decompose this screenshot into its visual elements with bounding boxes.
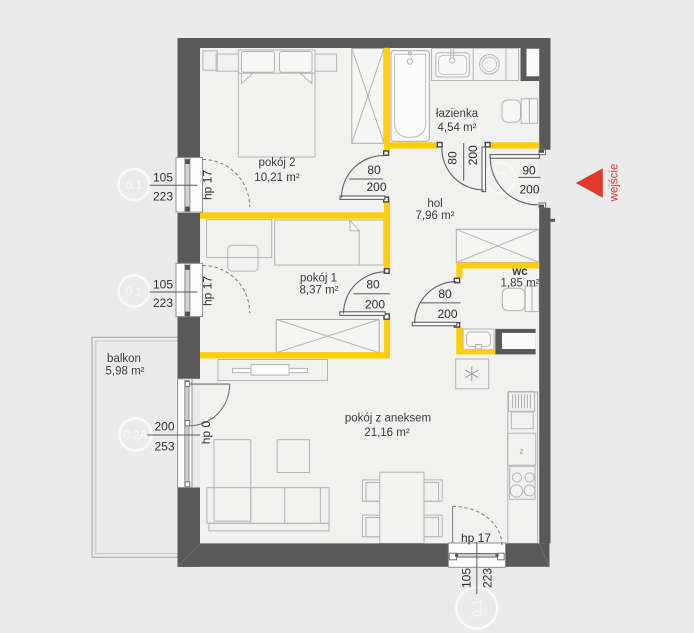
svg-text:hp 0: hp 0: [199, 420, 213, 444]
svg-text:balkon: balkon: [107, 353, 141, 365]
svg-text:253: 253: [154, 439, 174, 453]
svg-text:wc: wc: [511, 266, 528, 278]
svg-text:8,37 m²: 8,37 m²: [300, 285, 339, 297]
svg-text:hp 17: hp 17: [201, 170, 215, 200]
svg-text:90: 90: [522, 164, 536, 178]
svg-text:223: 223: [153, 296, 173, 310]
svg-text:80: 80: [367, 163, 381, 177]
svg-text:4,54 m²: 4,54 m²: [438, 122, 477, 134]
svg-text:1,85 m²: 1,85 m²: [501, 278, 540, 290]
svg-text:0.2A: 0.2A: [124, 430, 148, 442]
svg-text:200: 200: [437, 307, 457, 321]
svg-text:80: 80: [445, 151, 459, 165]
svg-text:0.1: 0.1: [469, 599, 484, 617]
svg-text:hp 17: hp 17: [461, 531, 491, 545]
svg-text:hol: hol: [427, 198, 442, 210]
svg-text:0.1: 0.1: [126, 178, 143, 192]
svg-text:200: 200: [466, 145, 480, 165]
svg-text:pokój 1: pokój 1: [300, 273, 337, 285]
svg-text:łazienka: łazienka: [436, 108, 479, 120]
svg-text:pokój z aneksem: pokój z aneksem: [345, 413, 431, 425]
svg-text:wejście: wejście: [609, 164, 621, 203]
svg-text:80: 80: [366, 278, 380, 292]
svg-text:21,16 m²: 21,16 m²: [364, 427, 410, 439]
svg-text:200: 200: [154, 420, 174, 434]
svg-text:105: 105: [153, 277, 173, 291]
svg-text:80: 80: [438, 287, 452, 301]
svg-text:7,96 m²: 7,96 m²: [416, 210, 455, 222]
svg-text:105: 105: [153, 171, 173, 185]
svg-text:105: 105: [460, 568, 474, 588]
svg-text:200: 200: [365, 298, 385, 312]
svg-text:hp 17: hp 17: [201, 276, 215, 306]
svg-text:200: 200: [366, 180, 386, 194]
svg-text:z: z: [520, 447, 524, 456]
svg-text:5,98 m²: 5,98 m²: [106, 366, 145, 378]
svg-text:0.1: 0.1: [126, 285, 143, 299]
svg-text:223: 223: [153, 190, 173, 204]
svg-text:0.1: 0.1: [494, 169, 508, 186]
svg-text:200: 200: [519, 183, 539, 197]
svg-text:10,21 m²: 10,21 m²: [254, 172, 300, 184]
svg-text:pokój 2: pokój 2: [258, 157, 295, 169]
svg-text:223: 223: [481, 568, 495, 588]
